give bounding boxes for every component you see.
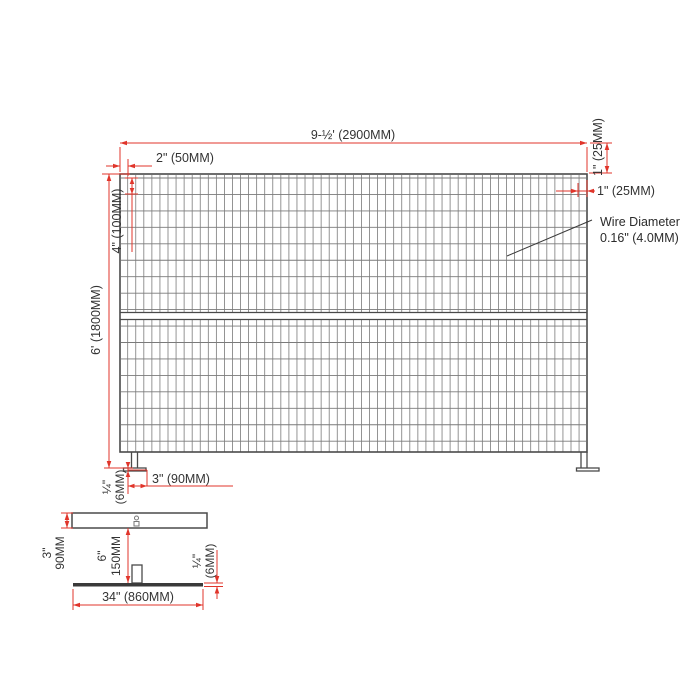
base-leg-height-label-line1: 6" — [95, 551, 109, 562]
base-hole-mark-circle — [135, 516, 139, 520]
wire-pitch-horizontal-label: 2" (50MM) — [156, 151, 214, 165]
base-plate-height-label-line2: 90MM — [53, 536, 67, 569]
wire-pitch-vertical-label: 4" (100MM) — [110, 189, 124, 254]
overall-height-label: 6' (1800MM) — [89, 285, 103, 355]
base-hole-mark-square — [134, 522, 139, 527]
fence-panel-technical-drawing: 9-½' (2900MM) 2" (50MM) 1" (25MM) 1" (25… — [0, 0, 700, 700]
wire-diameter-note-line1: Wire Diameter — [600, 215, 680, 229]
overall-width-label: 9-½' (2900MM) — [311, 128, 395, 142]
frame-tube-top-label: 1" (25MM) — [591, 118, 605, 176]
base-plate — [73, 583, 203, 587]
base-plate-height-label-line1: 3" — [40, 548, 54, 559]
frame-edge-gap-label: 1" (25MM) — [597, 184, 655, 198]
base-leg-height-label-line2: 150MM — [109, 536, 123, 576]
base-plate-thickness-label-line1: ¼" — [190, 554, 204, 568]
foot-thickness-label-line1: ¼" — [100, 480, 114, 494]
wire-diameter-note-line2: 0.16" (4.0MM) — [600, 231, 679, 245]
base-plate-width-label: 34" (860MM) — [102, 590, 174, 604]
base-plate-thickness-label-line2: (6MM) — [203, 544, 217, 579]
foot-thickness-label-line2: (6MM) — [113, 470, 127, 505]
base-leg-stub — [132, 565, 142, 583]
dimension-arrows — [107, 141, 610, 489]
foot-width-label: 3" (90MM) — [152, 472, 210, 486]
drawing-canvas: 9-½' (2900MM) 2" (50MM) 1" (25MM) 1" (25… — [0, 0, 700, 700]
right-foot-plate — [577, 468, 600, 471]
wire-mesh — [121, 175, 586, 452]
panel-legs — [124, 452, 600, 471]
base-detail — [72, 513, 207, 587]
